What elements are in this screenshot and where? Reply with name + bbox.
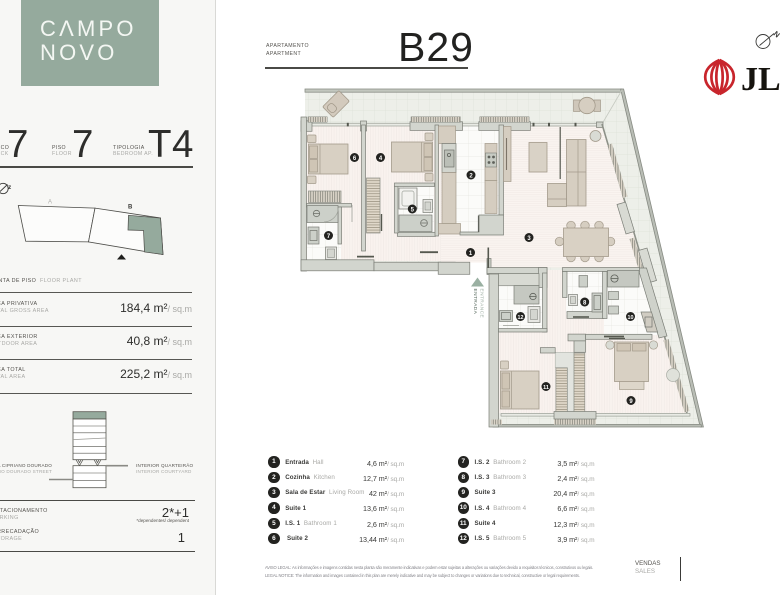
svg-text:12: 12 — [518, 315, 524, 321]
svg-text:10: 10 — [628, 315, 634, 321]
svg-text:11: 11 — [543, 385, 549, 391]
svg-text:ENTRANCE: ENTRANCE — [479, 289, 485, 319]
svg-text:ENTRADA: ENTRADA — [472, 289, 478, 315]
